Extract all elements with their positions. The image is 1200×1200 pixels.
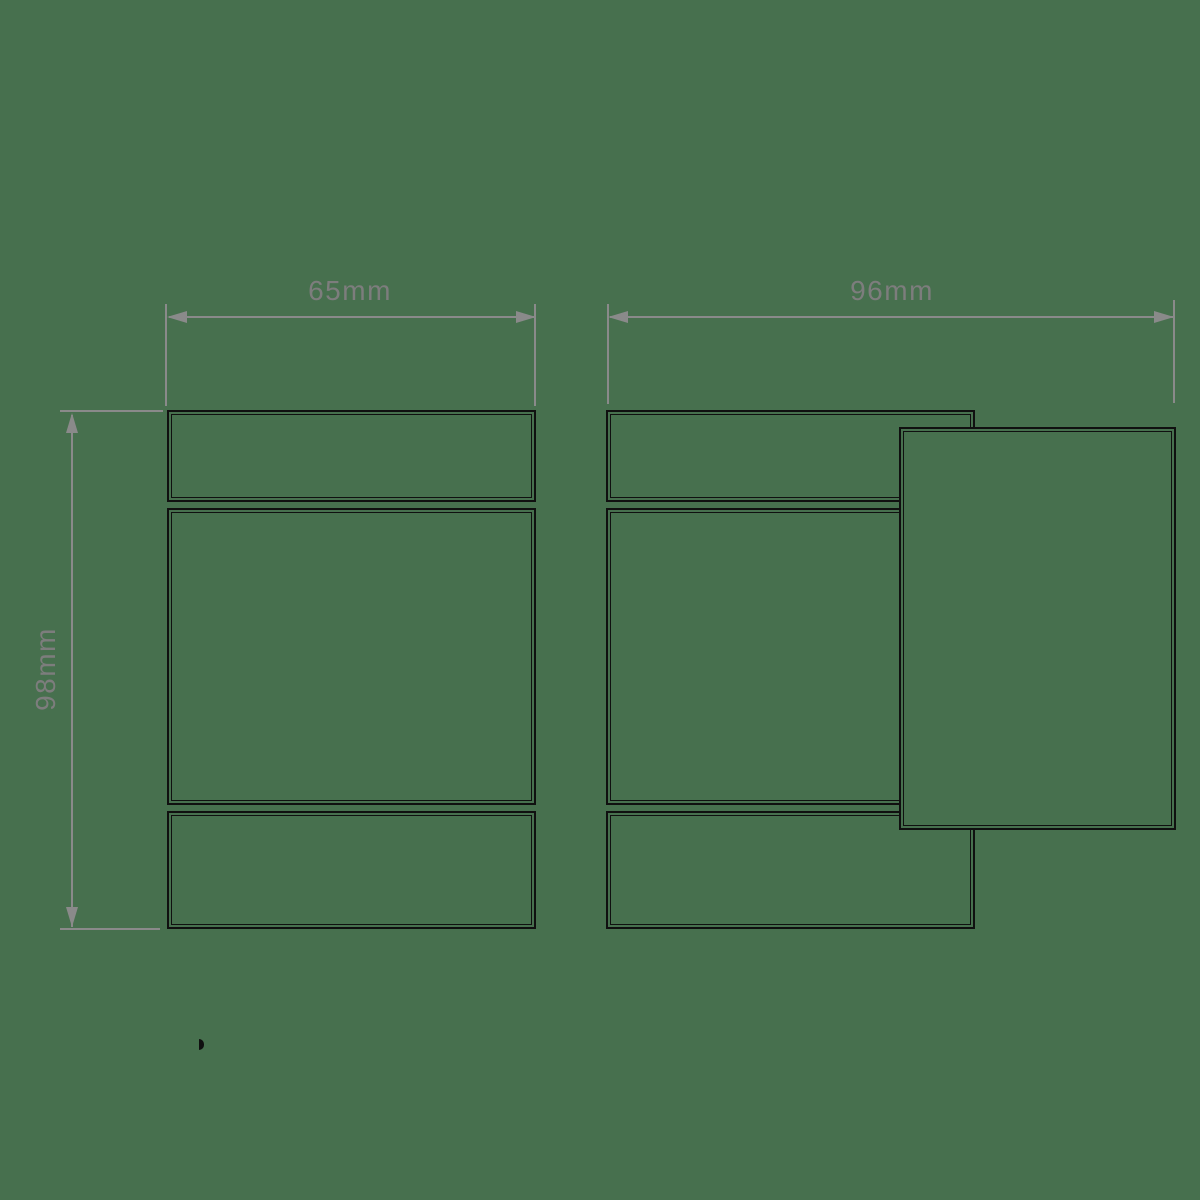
arrowhead-down-icon: [66, 907, 78, 927]
dimension-line: [610, 316, 1173, 318]
arrowhead-left-icon: [167, 311, 187, 323]
front-top-cap: [167, 410, 536, 502]
dimension-drawing: 65mm 96mm 98mm: [0, 0, 1200, 1200]
front-width-label: 65mm: [280, 276, 420, 306]
extension-line: [60, 928, 160, 930]
dimension-line: [169, 316, 534, 318]
arrowhead-right-icon: [1154, 311, 1174, 323]
front-body: [167, 508, 536, 805]
arrowhead-up-icon: [66, 413, 78, 433]
stray-mark: [199, 1039, 204, 1050]
side-head-overlap: [899, 427, 1176, 830]
dimension-line: [71, 415, 73, 927]
arrowhead-right-icon: [516, 311, 536, 323]
height-label: 98mm: [31, 599, 61, 739]
side-width-label: 96mm: [822, 276, 962, 306]
arrowhead-left-icon: [608, 311, 628, 323]
extension-line: [60, 410, 163, 412]
front-bottom-cap: [167, 811, 536, 929]
